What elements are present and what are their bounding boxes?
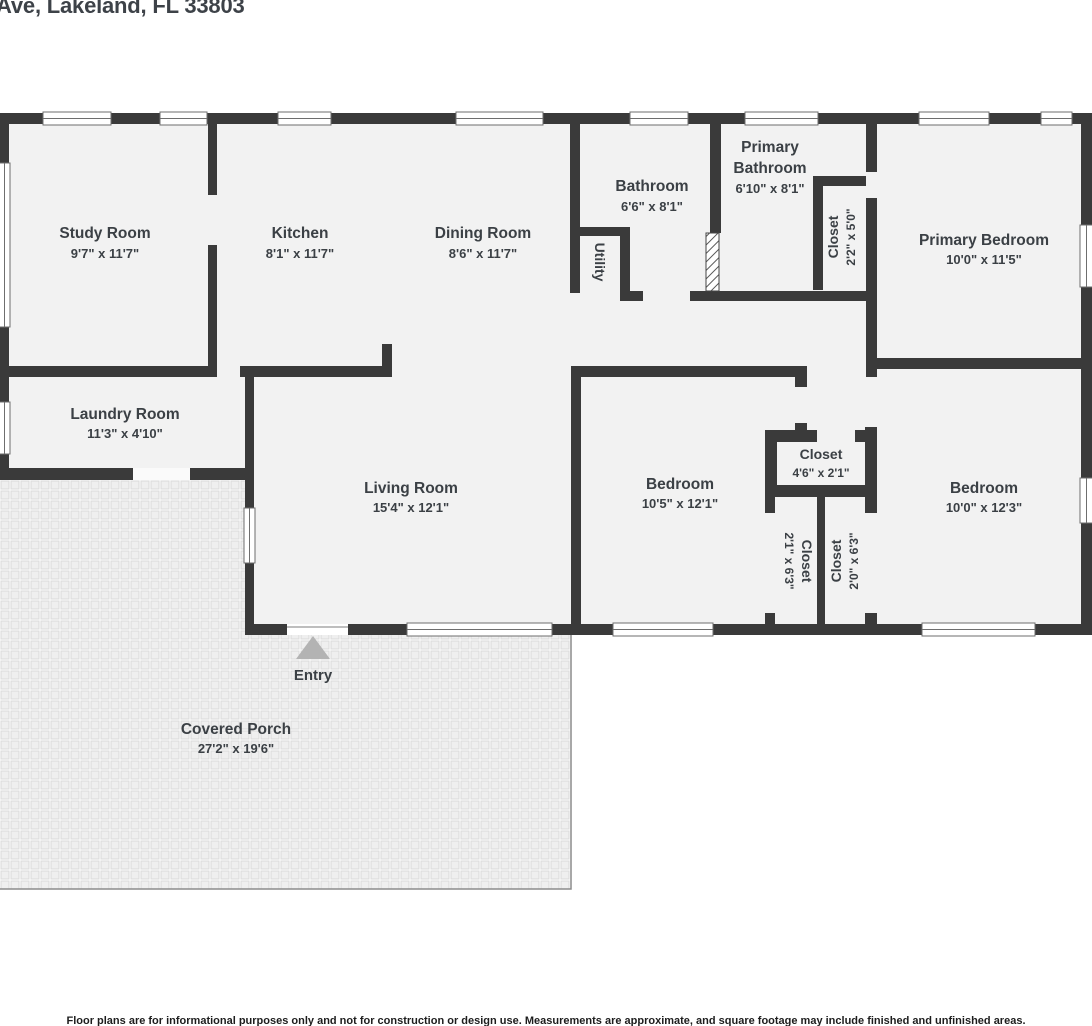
wall	[1081, 113, 1092, 635]
wall	[817, 497, 825, 624]
floor-plan-drawing: Study Room 9'7" x 11'7" Kitchen 8'1" x 1…	[0, 0, 1092, 1026]
wall	[690, 291, 877, 301]
wall	[795, 366, 807, 387]
window-glyph	[630, 112, 688, 125]
window-glyph	[43, 112, 111, 125]
room-dims-dining: 8'6" x 11'7"	[449, 246, 517, 261]
svg-text:2'2" x 5'0": 2'2" x 5'0"	[844, 208, 858, 265]
room-dims-primary-bedroom: 10'0" x 11'5"	[946, 252, 1022, 267]
wall	[866, 198, 877, 298]
room-label-primary-bathroom-1: Primary	[741, 139, 799, 156]
wall	[208, 245, 217, 377]
room-dims-bedroom-right: 10'0" x 12'3"	[946, 500, 1022, 515]
window-glyph	[407, 623, 552, 636]
svg-text:Closet: Closet	[828, 539, 844, 582]
svg-text:2'1" x 6'3": 2'1" x 6'3"	[782, 532, 796, 589]
window-glyph	[160, 112, 207, 125]
room-dims-living: 15'4" x 12'1"	[373, 500, 449, 515]
room-dims-closet-hall: 4'6" x 2'1"	[792, 466, 849, 480]
wall	[245, 563, 254, 624]
wall	[620, 227, 630, 301]
room-dims-porch: 27'2" x 19'6"	[198, 741, 274, 756]
room-label-bedroom-right: Bedroom	[950, 480, 1018, 497]
room-label-primary-bedroom: Primary Bedroom	[919, 232, 1049, 249]
room-label-bedroom-middle: Bedroom	[646, 476, 714, 493]
window-glyph	[278, 112, 331, 125]
room-label-bathroom: Bathroom	[615, 178, 688, 195]
wall	[0, 468, 133, 480]
room-dims-laundry: 11'3" x 4'10"	[87, 426, 163, 441]
room-label-closet-hall: Closet	[800, 446, 843, 462]
wall	[765, 613, 775, 624]
wall	[866, 113, 877, 172]
window-glyph	[456, 112, 543, 125]
window-glyph	[745, 112, 818, 125]
wall	[571, 366, 581, 635]
entry-door-gap	[287, 624, 348, 635]
wall	[208, 124, 217, 195]
page-title: Ave, Lakeland, FL 33803	[0, 0, 245, 19]
wall	[813, 176, 823, 290]
wall	[382, 344, 392, 366]
window-glyph	[613, 623, 713, 636]
room-label-study: Study Room	[59, 225, 150, 242]
svg-text:2'0" x 6'3": 2'0" x 6'3"	[847, 532, 861, 589]
wall	[240, 366, 392, 377]
room-dims-bedroom-middle: 10'5" x 12'1"	[642, 496, 718, 511]
wall	[765, 485, 877, 497]
window-glyph	[1041, 112, 1072, 125]
room-label-kitchen: Kitchen	[272, 225, 329, 242]
window-glyph	[919, 112, 989, 125]
wall	[866, 297, 877, 377]
room-dims-primary-bathroom: 6'10" x 8'1"	[735, 181, 804, 196]
window-glyph	[1080, 478, 1092, 523]
hatched-panel	[706, 233, 719, 291]
wall	[0, 366, 209, 377]
wall	[877, 358, 1092, 369]
svg-text:Closet: Closet	[799, 540, 815, 583]
window-glyph	[244, 508, 255, 563]
svg-text:Utility: Utility	[592, 243, 608, 282]
room-label-laundry: Laundry Room	[70, 406, 179, 423]
room-dims-study: 9'7" x 11'7"	[71, 246, 139, 261]
wall	[710, 113, 721, 233]
wall	[855, 430, 877, 442]
wall	[190, 468, 254, 480]
window-glyph	[0, 163, 10, 327]
room-label-utility: Utility	[592, 243, 608, 282]
entry-label: Entry	[294, 667, 333, 684]
room-dims-kitchen: 8'1" x 11'7"	[266, 246, 334, 261]
wall	[765, 497, 775, 513]
room-label-porch: Covered Porch	[181, 721, 291, 738]
wall	[571, 366, 797, 377]
window-glyph	[1080, 225, 1092, 287]
wall	[620, 291, 643, 301]
wall	[245, 624, 287, 635]
svg-text:Closet: Closet	[825, 215, 841, 258]
room-dims-bathroom: 6'6" x 8'1"	[621, 199, 683, 214]
wall	[570, 124, 580, 293]
room-label-dining: Dining Room	[435, 225, 531, 242]
window-glyph	[922, 623, 1035, 636]
floor-plan-page: Ave, Lakeland, FL 33803	[0, 0, 1092, 1026]
room-label-primary-bathroom-2: Bathroom	[733, 160, 806, 177]
disclaimer-text: Floor plans are for informational purpos…	[0, 1015, 1092, 1026]
wall	[865, 613, 877, 624]
laundry-door-gap	[133, 468, 190, 480]
wall	[245, 366, 254, 508]
window-glyph	[0, 402, 10, 454]
room-label-living: Living Room	[364, 480, 458, 497]
